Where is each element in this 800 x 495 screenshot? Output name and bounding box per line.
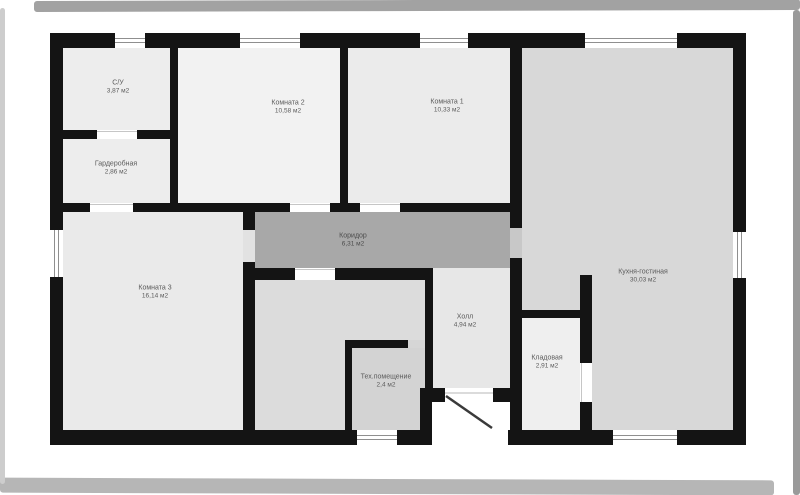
wall xyxy=(425,280,433,402)
room-area: 16,14 м2 xyxy=(138,293,171,301)
window xyxy=(115,33,145,48)
wall xyxy=(493,388,515,402)
room-komnata3 xyxy=(63,212,243,430)
room-area: 30,03 м2 xyxy=(618,277,668,285)
room-name: Комната 1 xyxy=(430,98,463,107)
room-area: 10,58 м2 xyxy=(271,108,304,116)
wall xyxy=(63,130,97,139)
room-label-holl: Холл 4,94 м2 xyxy=(454,313,477,330)
wall xyxy=(468,33,585,48)
room-label-kitchen: Кухня-гостиная 30,03 м2 xyxy=(618,268,668,285)
wall xyxy=(510,48,522,228)
wall xyxy=(243,212,255,230)
wall xyxy=(733,33,746,232)
wall xyxy=(300,33,420,48)
door-opening xyxy=(243,230,255,262)
window xyxy=(613,430,677,445)
door-opening xyxy=(360,203,400,212)
floor-plan: С/У 3,87 м2 Гардеробная 2,86 м2 Комната … xyxy=(0,0,800,495)
room-kladovaya xyxy=(522,318,580,432)
room-area: 6,31 м2 xyxy=(339,241,367,249)
window xyxy=(357,430,397,445)
entrance-recess xyxy=(432,402,508,430)
room-name: С/У xyxy=(107,79,130,88)
room-area: 3,87 м2 xyxy=(107,88,130,96)
room-label-teh: Тех.помещение 2,4 м2 xyxy=(361,373,412,390)
wall xyxy=(400,203,510,212)
wall xyxy=(63,203,90,212)
room-label-kladovaya: Кладовая 2,91 м2 xyxy=(531,354,562,371)
room-area: 2,4 м2 xyxy=(361,382,412,390)
wall xyxy=(345,340,352,430)
room-name: Коридор xyxy=(339,232,367,241)
floor-plan-photo: С/У 3,87 м2 Гардеробная 2,86 м2 Комната … xyxy=(0,0,800,495)
room-label-su: С/У 3,87 м2 xyxy=(107,79,130,96)
room-area: 10,33 м2 xyxy=(430,107,463,115)
wall xyxy=(243,262,255,430)
window xyxy=(240,33,300,48)
window xyxy=(733,232,746,278)
wall xyxy=(580,402,592,432)
window xyxy=(585,33,677,48)
room-name: Кладовая xyxy=(531,354,562,363)
window xyxy=(50,230,63,277)
room-area: 2,91 м2 xyxy=(531,363,562,371)
room-komnata2 xyxy=(178,48,340,203)
door-opening xyxy=(290,203,330,212)
wall xyxy=(145,33,240,48)
room-name: Гардеробная xyxy=(95,160,137,169)
wall xyxy=(50,277,63,445)
window xyxy=(420,33,468,48)
door-opening xyxy=(408,340,425,348)
wall xyxy=(420,388,445,402)
room-koridor xyxy=(255,212,510,268)
room-name: Комната 2 xyxy=(271,99,304,108)
room-komnata1 xyxy=(348,48,510,203)
wall xyxy=(420,402,432,445)
wall xyxy=(580,275,592,363)
door-opening xyxy=(90,203,133,212)
room-name: Холл xyxy=(454,313,477,322)
room-name: Тех.помещение xyxy=(361,373,412,382)
wall xyxy=(133,203,290,212)
wall xyxy=(335,268,433,280)
door-opening xyxy=(295,268,335,280)
door-opening xyxy=(580,363,592,402)
room-area: 2,86 м2 xyxy=(95,169,137,177)
room-label-komnata1: Комната 1 10,33 м2 xyxy=(430,98,463,115)
room-name: Комната 3 xyxy=(138,284,171,293)
room-name: Кухня-гостиная xyxy=(618,268,668,277)
room-label-garderobnaya: Гардеробная 2,86 м2 xyxy=(95,160,137,177)
wall xyxy=(255,268,295,280)
wall xyxy=(345,340,408,348)
door-opening xyxy=(510,228,522,258)
wall xyxy=(733,278,746,445)
room-label-koridor: Коридор 6,31 м2 xyxy=(339,232,367,249)
room-label-komnata3: Комната 3 16,14 м2 xyxy=(138,284,171,301)
room-area: 4,94 м2 xyxy=(454,322,477,330)
wall xyxy=(170,48,178,212)
wall xyxy=(50,430,357,445)
wall xyxy=(510,258,522,445)
wall xyxy=(340,48,348,212)
wall xyxy=(50,33,63,230)
wall xyxy=(137,130,170,139)
door-opening xyxy=(97,130,137,139)
room-label-komnata2: Комната 2 10,58 м2 xyxy=(271,99,304,116)
wall xyxy=(508,430,613,445)
